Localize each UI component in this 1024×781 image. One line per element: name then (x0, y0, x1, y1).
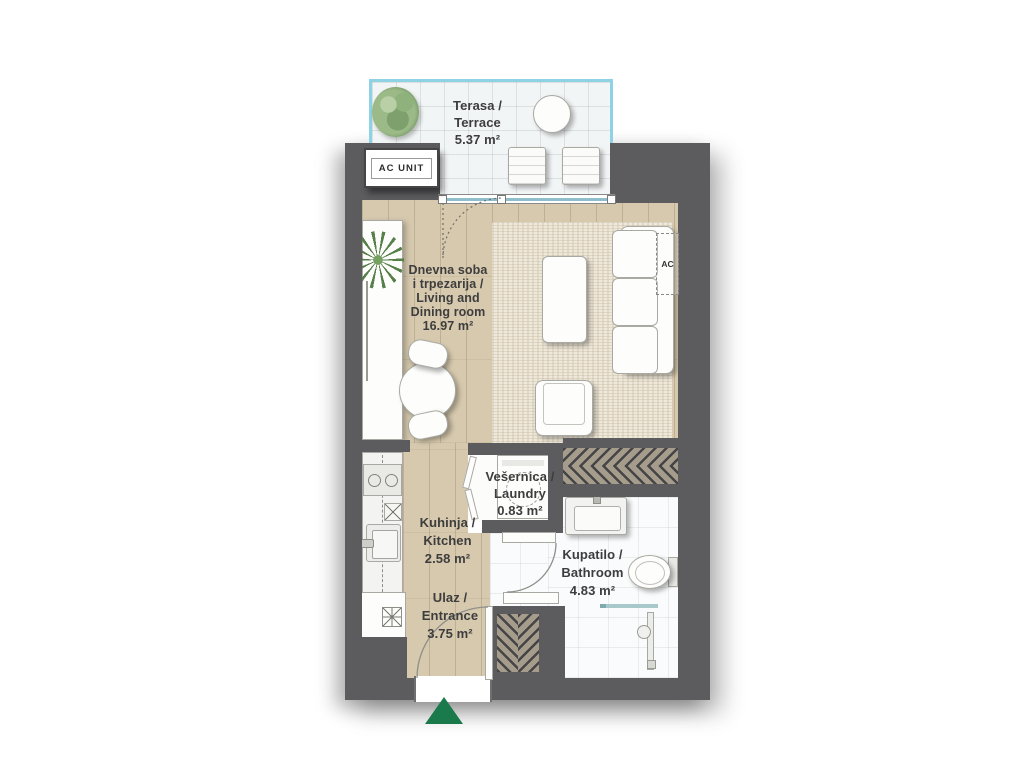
sliding-door-handle (607, 195, 616, 204)
dining-table (399, 362, 456, 419)
wall-bathroom-top-outer (563, 438, 680, 448)
bathroom-label: Kupatilo / Bathroom 4.83 m² (535, 546, 650, 600)
installation-shaft-horizontal (563, 448, 680, 484)
appliance-star-icon (382, 607, 402, 627)
wall-bottom-left-block (345, 637, 407, 700)
shaft-hatch-right (518, 614, 539, 672)
faucet-icon (360, 539, 374, 548)
kitchen-label: Kuhinja / Kitchen 2.58 m² (405, 514, 490, 568)
sofa-cushion (612, 326, 658, 374)
terrace-sliding-door (438, 194, 615, 204)
terrace-chair (508, 147, 546, 185)
shaft-hatch-left (497, 614, 518, 672)
sliding-door-handle (438, 195, 447, 204)
shower-head-icon (647, 660, 656, 669)
ac-indoor-label: AC (661, 259, 673, 269)
sofa-cushion (612, 230, 658, 278)
terrace-label: Terasa / Terrace 5.37 m² (420, 97, 535, 148)
glass-clamp (600, 604, 606, 608)
utility-cabinet (358, 592, 406, 639)
sliding-door-handle (497, 195, 506, 204)
burner-icon (385, 474, 398, 487)
vent-symbol-icon (384, 503, 402, 521)
wall-shaft-block (487, 606, 565, 680)
living-room-label: Dnevna soba i trpezarija / Living and Di… (388, 263, 508, 333)
kitchen-sink (366, 524, 401, 562)
sliding-door-rail (440, 198, 613, 201)
armchair-seat (543, 383, 585, 425)
vanity-basin (574, 506, 621, 531)
laundry-label: Vešernica / Laundry 0.83 m² (464, 468, 576, 519)
burner-icon (368, 474, 381, 487)
bathroom-door-leaf (502, 532, 556, 543)
shower-valve-icon (637, 625, 651, 639)
ac-unit-label: AC UNIT (371, 158, 433, 179)
entrance-marker-triangle (425, 697, 463, 724)
wall-left (345, 143, 362, 700)
wall-kitchen-stub (345, 440, 410, 452)
armchair (535, 380, 593, 436)
wall-top-right (610, 143, 710, 203)
entrance-label: Ulaz / Entrance 3.75 m² (404, 589, 496, 643)
terrace-chair (562, 147, 600, 185)
sofa-cushion (612, 278, 658, 326)
wall-bottom-right (490, 678, 710, 700)
coffee-table (542, 256, 587, 343)
ac-indoor-unit: AC (656, 233, 679, 295)
ac-outdoor-unit: AC UNIT (364, 148, 439, 188)
shower-glass-partition (600, 604, 658, 608)
shaft-hatch-bottom (563, 466, 680, 484)
shaft-hatch-top (563, 448, 680, 466)
floor-plan-canvas: AC UNIT AC Terasa / Terrace 5.37 m² Dnev… (0, 0, 1024, 781)
wardrobe-handle (366, 281, 368, 381)
terrace-round-table (533, 95, 571, 133)
wall-right (678, 203, 710, 680)
terrace-tree (372, 87, 419, 137)
wall-bathroom-top-inner (563, 484, 680, 497)
stove-cooktop (363, 464, 402, 496)
shower-column (647, 612, 654, 670)
washer-panel (502, 460, 544, 466)
sink-basin (372, 530, 398, 559)
